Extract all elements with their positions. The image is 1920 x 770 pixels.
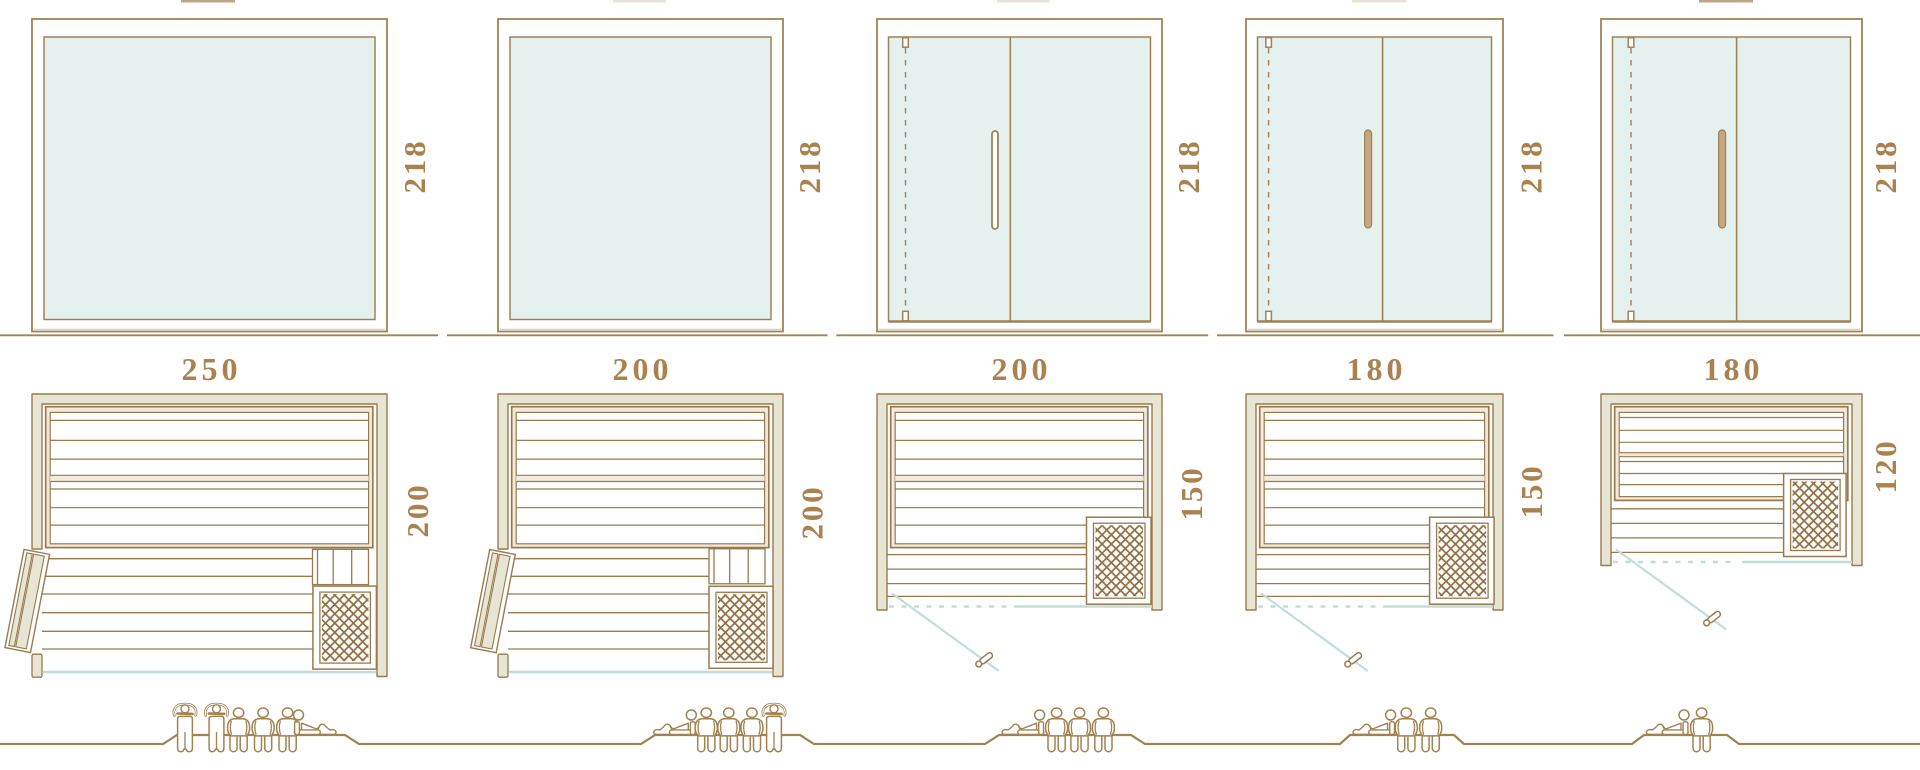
svg-text:150: 150 [1514, 464, 1549, 519]
svg-text:200: 200 [795, 485, 830, 540]
svg-text:218: 218 [1171, 139, 1206, 194]
svg-text:200: 200 [992, 351, 1052, 387]
svg-text:200: 200 [400, 483, 435, 538]
svg-text:218: 218 [397, 139, 432, 194]
svg-text:218: 218 [1514, 139, 1549, 194]
svg-text:150: 150 [1174, 466, 1209, 521]
svg-text:180: 180 [1704, 351, 1764, 387]
svg-text:250: 250 [182, 351, 242, 387]
svg-text:180: 180 [1347, 351, 1407, 387]
svg-text:200: 200 [613, 351, 673, 387]
svg-text:218: 218 [1868, 139, 1903, 194]
svg-text:218: 218 [792, 139, 827, 194]
svg-text:120: 120 [1868, 439, 1903, 494]
